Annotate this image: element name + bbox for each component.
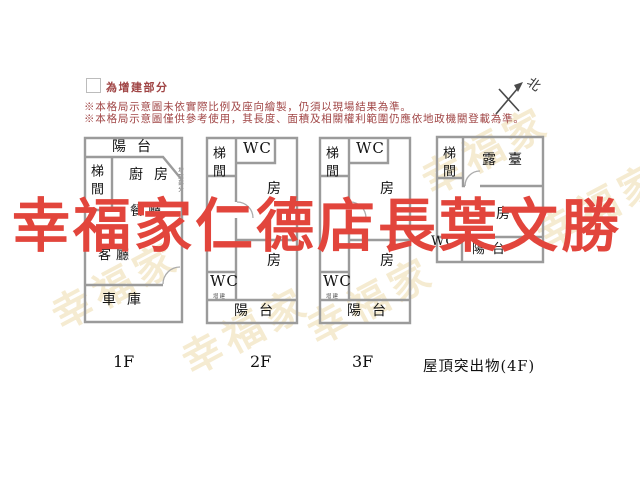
room-label-4f-terrace: 露臺 xyxy=(482,153,534,167)
floorplan-sheet: 幸福家 幸福家 幸福家 幸福家 幸福家 為增建部分 ※本格局示意圖未依實際比例及… xyxy=(0,0,640,480)
floor-title-2f: 2F xyxy=(250,352,271,371)
floor-title-4f-roof: 屋頂突出物(4F) xyxy=(423,355,535,376)
compass-arrow-line xyxy=(496,88,518,114)
room-label-1f-kitchen: 廚房 xyxy=(129,168,179,182)
room-label-1f-balcony: 陽台 xyxy=(112,140,162,154)
legend-addition-label: 為增建部分 xyxy=(106,79,169,95)
room-label-2f-wc-top: WC xyxy=(243,141,272,156)
north-compass-icon: 北 xyxy=(486,58,558,126)
floor-title-1f: 1F xyxy=(113,352,134,371)
room-label-3f-stairwell: 梯間 xyxy=(324,146,337,182)
compass-north-label: 北 xyxy=(524,75,543,95)
room-label-4f-stairwell: 梯間 xyxy=(441,146,454,182)
floor-title-3f: 3F xyxy=(352,352,373,371)
room-label-1f-garage: 車庫 xyxy=(102,293,152,307)
room-label-3f-balcony: 陽台 xyxy=(347,304,397,318)
room-label-2f-wc-bottom: WC xyxy=(210,274,239,289)
room-label-3f-wc-bottom: WC xyxy=(323,274,352,289)
room-label-3f-wc-top: WC xyxy=(356,141,385,156)
agent-watermark-text: 幸福家仁德店長葉文勝 xyxy=(12,196,622,257)
room-label-2f-balcony: 陽台 xyxy=(234,304,284,318)
door-arc-4f-terrace xyxy=(465,171,480,186)
legend-addition-swatch xyxy=(86,78,101,93)
door-arc-1f-living xyxy=(163,267,180,284)
disclaimer-note-2: ※本格局示意圖僅供參考使用，其長度、面積及相關權利範圍仍應依地政機關登載為準。 xyxy=(84,111,525,126)
room-label-2f-stairwell: 梯間 xyxy=(211,146,224,182)
